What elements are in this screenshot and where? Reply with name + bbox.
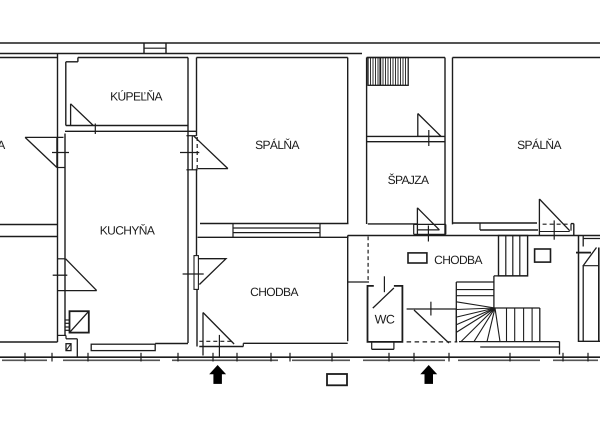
svg-text:A: A: [0, 138, 5, 152]
svg-text:CHODBA: CHODBA: [250, 285, 298, 299]
svg-text:CHODBA: CHODBA: [434, 253, 482, 267]
svg-text:KÚPEĽŇA: KÚPEĽŇA: [110, 90, 162, 104]
svg-text:SPÁLŇA: SPÁLŇA: [255, 138, 299, 152]
svg-text:ŠPAJZA: ŠPAJZA: [388, 173, 429, 187]
svg-text:SPÁLŇA: SPÁLŇA: [517, 138, 561, 152]
svg-text:KUCHYŇA: KUCHYŇA: [100, 224, 155, 238]
svg-text:WC: WC: [375, 313, 395, 327]
